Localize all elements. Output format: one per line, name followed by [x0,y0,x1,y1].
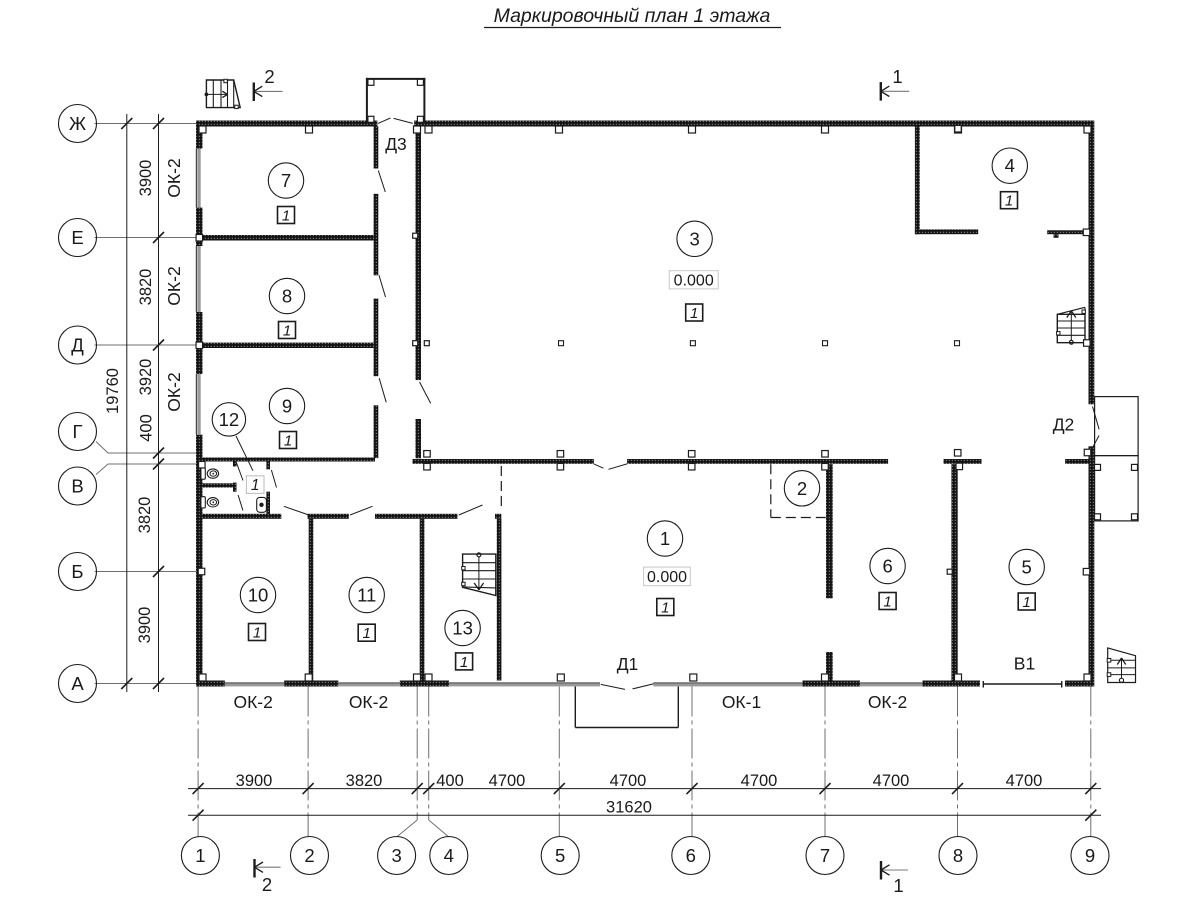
svg-text:ОК-2: ОК-2 [164,372,184,411]
svg-text:1: 1 [893,875,903,896]
svg-text:Д3: Д3 [385,134,407,154]
svg-text:6: 6 [686,845,696,866]
svg-text:1: 1 [660,528,670,549]
svg-text:Д2: Д2 [1053,415,1075,435]
svg-text:ОК-2: ОК-2 [349,692,388,712]
svg-text:2: 2 [262,874,272,895]
svg-text:3: 3 [391,845,401,866]
svg-text:1: 1 [1005,193,1013,210]
svg-text:13: 13 [452,617,473,638]
svg-text:ОК-2: ОК-2 [164,158,184,197]
svg-text:4: 4 [444,845,454,866]
svg-text:1: 1 [363,625,371,642]
svg-text:31620: 31620 [606,799,652,817]
svg-text:400: 400 [138,414,156,442]
svg-text:ОК-2: ОК-2 [164,266,184,305]
svg-text:ОК-2: ОК-2 [234,692,273,712]
svg-text:3900: 3900 [236,772,273,790]
svg-text:7: 7 [281,170,291,191]
svg-text:1: 1 [892,66,902,87]
svg-text:5: 5 [1022,556,1032,577]
svg-text:ОК-2: ОК-2 [868,692,907,712]
svg-text:1: 1 [283,322,291,339]
svg-text:3900: 3900 [137,160,155,197]
svg-text:3900: 3900 [136,607,154,644]
svg-text:9: 9 [282,395,292,416]
svg-text:8: 8 [282,285,292,306]
svg-text:4700: 4700 [489,772,526,790]
svg-text:2: 2 [304,845,314,866]
svg-text:Е: Е [71,227,83,248]
svg-text:1: 1 [661,599,669,616]
svg-text:3820: 3820 [136,497,154,534]
svg-text:Г: Г [72,421,82,442]
svg-text:1: 1 [883,593,891,610]
svg-text:1: 1 [690,305,698,322]
svg-text:4700: 4700 [1006,772,1043,790]
svg-text:7: 7 [820,845,830,866]
svg-text:1: 1 [282,207,290,224]
svg-text:1: 1 [284,432,292,449]
svg-text:3820: 3820 [137,269,155,306]
svg-text:Д1: Д1 [617,654,639,674]
svg-text:1: 1 [195,845,205,866]
svg-text:0.000: 0.000 [674,273,714,290]
svg-text:1: 1 [1023,594,1031,611]
svg-text:4700: 4700 [610,772,647,790]
svg-text:2: 2 [797,478,807,499]
svg-text:В: В [71,475,83,496]
svg-text:8: 8 [953,845,963,866]
svg-text:10: 10 [248,584,269,605]
svg-text:2: 2 [264,66,274,87]
svg-text:4700: 4700 [873,772,910,790]
svg-text:6: 6 [882,555,892,576]
svg-text:3: 3 [689,228,699,249]
svg-text:В1: В1 [1014,654,1035,674]
svg-text:11: 11 [357,584,376,605]
svg-text:3920: 3920 [137,359,155,396]
svg-text:1: 1 [251,477,260,494]
svg-text:9: 9 [1085,845,1095,866]
svg-text:4: 4 [1005,155,1015,176]
svg-text:5: 5 [555,845,565,866]
svg-text:400: 400 [436,772,464,790]
svg-text:19760: 19760 [104,368,122,414]
svg-text:А: А [71,673,84,694]
svg-text:Ж: Ж [69,113,86,134]
svg-text:ОК-1: ОК-1 [722,692,761,712]
svg-text:3820: 3820 [346,772,383,790]
svg-text:Маркировочный план 1 этажа: Маркировочный план 1 этажа [494,5,771,27]
svg-text:Б: Б [71,561,83,582]
svg-text:4700: 4700 [741,772,778,790]
svg-text:0.000: 0.000 [647,569,687,586]
svg-text:Д: Д [71,334,84,355]
svg-text:1: 1 [253,624,261,641]
svg-text:12: 12 [219,409,240,430]
svg-text:1: 1 [460,654,468,671]
